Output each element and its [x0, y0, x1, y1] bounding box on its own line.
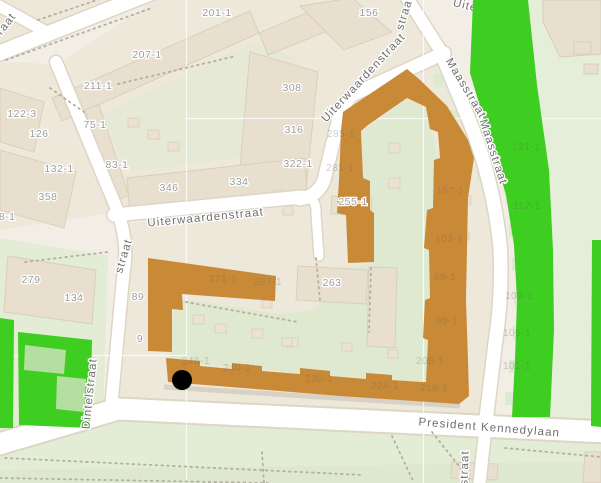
house-number: 75-1: [83, 119, 106, 131]
house-number: 316: [284, 124, 303, 136]
ghost-house-number: 285-1: [327, 129, 355, 140]
house-number: 255-1: [338, 196, 367, 208]
house-number: 9: [137, 333, 143, 345]
ghost-house-number: 117-1: [513, 201, 540, 212]
ghost-house-number: 240-1: [223, 363, 251, 374]
house-number: 89: [132, 291, 145, 303]
house-number: 207-1: [132, 49, 161, 61]
ghost-house-number: 230-1: [305, 374, 333, 385]
house-number: 211-1: [84, 80, 113, 92]
parcel-inner-building: [56, 376, 86, 412]
house-number: 201-1: [202, 7, 231, 19]
ghost-house-number: 246-1: [182, 356, 210, 367]
ghost-house-number: 95-1: [436, 316, 458, 327]
ghost-house-number: 105-1: [503, 328, 531, 339]
parcel-far-east-strip: [591, 240, 601, 427]
ghost-house-number: 224-1: [371, 381, 399, 392]
ghost-house-number: 103-1: [435, 234, 463, 245]
ghost-house-number: 121-1: [512, 142, 540, 153]
house-number: 263: [322, 277, 341, 289]
house-number: 308: [282, 82, 301, 94]
ghost-house-number: 271-1: [209, 274, 237, 285]
house-number: 156: [359, 7, 378, 19]
map-canvas[interactable]: Uiterwaar 271-1267-1285-1281-1246-1240-1…: [0, 0, 601, 483]
location-marker[interactable]: [172, 370, 192, 390]
house-number: 132-1: [44, 163, 73, 175]
ghost-house-number: 107-1: [436, 186, 464, 197]
ghost-house-number: 281-1: [326, 163, 354, 174]
house-number: 126: [29, 128, 48, 140]
house-number: 83-1: [105, 159, 128, 171]
house-number: 58-1: [0, 211, 16, 223]
house-number: 322-1: [283, 158, 312, 170]
house-number: 358: [38, 191, 57, 203]
house-number: 334: [229, 176, 248, 188]
house-number: 134: [64, 292, 83, 304]
street-name-label: straat: [458, 450, 471, 483]
ghost-house-number: 109-1: [505, 291, 533, 302]
map-viewport: Uiterwaar 271-1267-1285-1281-1246-1240-1…: [0, 0, 601, 483]
parcel-southwest-edge: [0, 318, 14, 428]
ghost-house-number: 101-1: [503, 361, 531, 372]
house-number: 279: [21, 274, 40, 286]
ghost-house-number: 99-1: [434, 272, 456, 283]
ghost-house-number: 208-1: [416, 356, 444, 367]
parcel-inner-building: [24, 345, 66, 374]
house-number: 122-3: [7, 108, 36, 120]
house-number: 346: [159, 182, 178, 194]
ghost-house-number: 267-1: [254, 277, 282, 288]
ghost-house-number: 216-1: [420, 383, 448, 394]
